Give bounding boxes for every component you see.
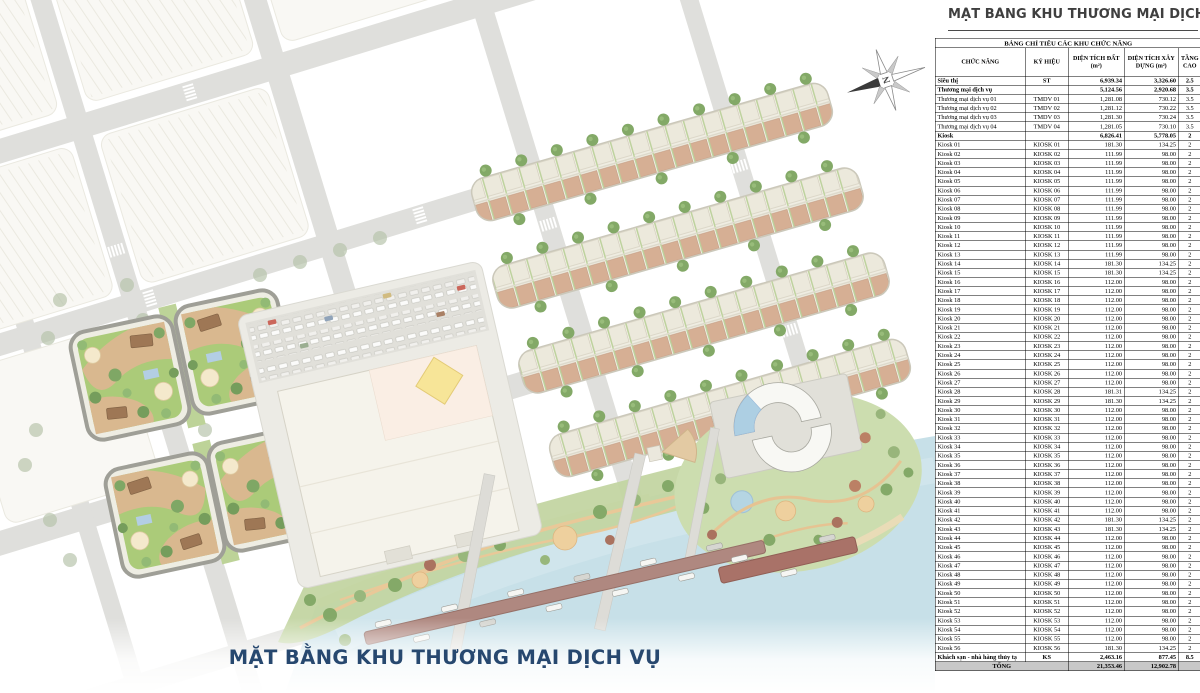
table-row: Khách sạn - nhà hàng thủy tạKS2,463.1687… [935,653,1200,662]
table-header-row: CHỨC NĂNG KÝ HIỆU DIỆN TÍCH ĐẤT (m²) DIỆ… [935,48,1200,77]
table-row: Kiosk 28KIOSK 28181.31134.252 [935,387,1200,396]
table-row: Kiosk 17KIOSK 17112.0098.002 [935,287,1200,296]
table-row: Kiosk 32KIOSK 32112.0098.002 [935,424,1200,433]
table-row: Kiosk 04KIOSK 04111.9998.002 [935,168,1200,177]
table-row: Kiosk 43KIOSK 43181.30134.252 [935,525,1200,534]
col-header-symbol: KÝ HIỆU [1025,48,1068,77]
col-header-build-area: DIỆN TÍCH XÂY DỰNG (m²) [1124,48,1178,77]
table-row: Kiosk 09KIOSK 09111.9998.002 [935,213,1200,222]
table-row: Kiosk 29KIOSK 29181.30134.252 [935,396,1200,405]
table-row: Kiosk 05KIOSK 05111.9998.002 [935,177,1200,186]
table-row: Kiosk 08KIOSK 08111.9998.002 [935,204,1200,213]
table-row: Kiosk 49KIOSK 49112.0098.002 [935,579,1200,588]
table-row: Kiosk 40KIOSK 40112.0098.002 [935,497,1200,506]
table-row: Kiosk 56KIOSK 56181.30134.252 [935,643,1200,652]
table-row: Kiosk 03KIOSK 03111.9998.002 [935,159,1200,168]
table-row: Kiosk 51KIOSK 51112.0098.002 [935,598,1200,607]
table-row: Kiosk 06KIOSK 06111.9998.002 [935,186,1200,195]
table-row: Kiosk 48KIOSK 48112.0098.002 [935,570,1200,579]
table-row: Kiosk 36KIOSK 36112.0098.002 [935,460,1200,469]
table-row: Kiosk 46KIOSK 46112.0098.002 [935,552,1200,561]
panel-title-rule [948,30,1198,31]
table-row: Kiosk 18KIOSK 18112.0098.002 [935,296,1200,305]
panel-title: MẶT BẰNG KHU THƯƠNG MẠI DỊCH VỤ [948,7,1200,22]
wash-overlay [0,0,935,693]
table-row: Kiosk 30KIOSK 30112.0098.002 [935,406,1200,415]
table-row: Kiosk 15KIOSK 15181.30134.252 [935,268,1200,277]
spec-table-body: Siêu thịST6,939.343,326.602.5Thương mại … [935,76,1200,671]
table-row: Thương mại dịch vụ5,124.562,920.683.5 [935,85,1200,94]
table-row: Kiosk6,826.415,778.052 [935,131,1200,140]
col-header-function: CHỨC NĂNG [935,48,1025,77]
table-row: Kiosk 50KIOSK 50112.0098.002 [935,589,1200,598]
table-row: Kiosk 27KIOSK 27112.0098.002 [935,378,1200,387]
table-row: Siêu thịST6,939.343,326.602.5 [935,76,1200,85]
spec-table-wrap: BẢNG CHỈ TIÊU CÁC KHU CHỨC NĂNG CHỨC NĂN… [935,38,1200,671]
table-row: Kiosk 14KIOSK 14181.30134.252 [935,259,1200,268]
table-row: Kiosk 07KIOSK 07111.9998.002 [935,195,1200,204]
table-row: Kiosk 45KIOSK 45112.0098.002 [935,543,1200,552]
table-title: BẢNG CHỈ TIÊU CÁC KHU CHỨC NĂNG [935,38,1200,48]
table-row: Kiosk 34KIOSK 34112.0098.002 [935,442,1200,451]
table-total-row: TỔNG21,353.4612,902.78 [935,662,1200,671]
table-row: Kiosk 23KIOSK 23112.0098.002 [935,342,1200,351]
table-row: Kiosk 37KIOSK 37112.0098.002 [935,470,1200,479]
col-header-land-area: DIỆN TÍCH ĐẤT (m²) [1068,48,1124,77]
table-row: Kiosk 39KIOSK 39112.0098.002 [935,488,1200,497]
col-header-floors: TẦNG CAO [1178,48,1200,77]
table-row: Kiosk 24KIOSK 24112.0098.002 [935,351,1200,360]
table-row: Kiosk 55KIOSK 55112.0098.002 [935,634,1200,643]
table-row: Thương mại dịch vụ 03TMDV 031,281.30730.… [935,113,1200,122]
table-row: Kiosk 41KIOSK 41112.0098.002 [935,506,1200,515]
table-row: Kiosk 33KIOSK 33112.0098.002 [935,433,1200,442]
table-row: Kiosk 31KIOSK 31112.0098.002 [935,415,1200,424]
table-row: Kiosk 47KIOSK 47112.0098.002 [935,561,1200,570]
table-row: Kiosk 22KIOSK 22112.0098.002 [935,332,1200,341]
table-row: Kiosk 52KIOSK 52112.0098.002 [935,607,1200,616]
page: N MẶT BẰNG KHU THƯƠNG MẠI DỊCH VỤ MẶT BẰ… [0,0,1200,693]
table-row: Kiosk 01KIOSK 01181.30134.252 [935,140,1200,149]
table-row: Kiosk 21KIOSK 21112.0098.002 [935,323,1200,332]
table-row: Kiosk 25KIOSK 25112.0098.002 [935,360,1200,369]
table-row: Kiosk 10KIOSK 10111.9998.002 [935,223,1200,232]
plan-title: MẶT BẰNG KHU THƯƠNG MẠI DỊCH VỤ [0,646,890,669]
table-row: Kiosk 16KIOSK 16112.0098.002 [935,278,1200,287]
table-row: Kiosk 02KIOSK 02111.9998.002 [935,149,1200,158]
table-row: Thương mại dịch vụ 01TMDV 011,281.08730.… [935,95,1200,104]
table-row: Kiosk 38KIOSK 38112.0098.002 [935,479,1200,488]
table-row: Kiosk 13KIOSK 13111.9998.002 [935,250,1200,259]
table-row: Kiosk 19KIOSK 19112.0098.002 [935,305,1200,314]
table-row: Thương mại dịch vụ 04TMDV 041,281.05730.… [935,122,1200,131]
table-row: Kiosk 53KIOSK 53112.0098.002 [935,616,1200,625]
spec-panel: MẶT BẰNG KHU THƯƠNG MẠI DỊCH VỤ BẢNG CHỈ… [935,0,1200,693]
table-row: Kiosk 26KIOSK 26112.0098.002 [935,369,1200,378]
table-row: Kiosk 35KIOSK 35112.0098.002 [935,451,1200,460]
table-row: Kiosk 44KIOSK 44112.0098.002 [935,534,1200,543]
table-row: Kiosk 42KIOSK 42181.30134.252 [935,515,1200,524]
table-row: Thương mại dịch vụ 02TMDV 021,281.12730.… [935,104,1200,113]
table-title-row: BẢNG CHỈ TIÊU CÁC KHU CHỨC NĂNG [935,38,1200,48]
spec-table: BẢNG CHỈ TIÊU CÁC KHU CHỨC NĂNG CHỨC NĂN… [935,38,1200,671]
site-plan-drawing: N [0,0,935,693]
table-row: Kiosk 12KIOSK 12111.9998.002 [935,241,1200,250]
table-row: Kiosk 20KIOSK 20112.0098.002 [935,314,1200,323]
table-row: Kiosk 11KIOSK 11111.9998.002 [935,232,1200,241]
table-row: Kiosk 54KIOSK 54112.0098.002 [935,625,1200,634]
